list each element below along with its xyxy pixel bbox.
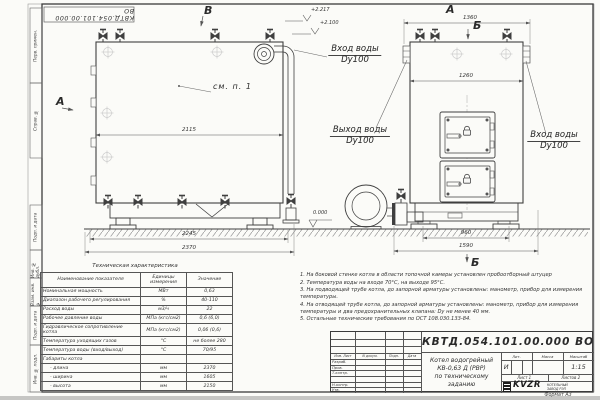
note-line: 3. На подводящей трубе котла, до запорно… <box>300 287 592 300</box>
label-water-inlet-front: Вход воды Dy100 <box>328 45 381 66</box>
note-line: 5. Остальные технические требования по О… <box>300 316 592 323</box>
technical-notes: 1. На боковой стенке котла в области топ… <box>300 272 592 324</box>
col-parameter: Наименование показателя <box>41 273 141 288</box>
tb-lit-value: И <box>501 360 511 374</box>
label-water-outlet: Выход воды Dy100 <box>330 126 390 147</box>
view-label-v: В <box>204 4 212 17</box>
table-header-row: Наименование показателя Единицы измерени… <box>41 273 233 288</box>
table-row: - длинамм2370 <box>41 364 233 373</box>
dim-2370: 2370 <box>182 245 196 251</box>
note-line: 1. На боковой стенке котла в области топ… <box>300 272 592 279</box>
kvzr-logo-subtext: КОТЕЛЬНЫЙ ЗАВОД РЭП <box>547 383 568 391</box>
callout-see-item-1: см. п. 1 <box>213 82 252 91</box>
table-row: Температура уходящих газов°Сне более 280 <box>41 337 233 346</box>
lower-door <box>440 161 495 202</box>
table-row: Рабочее давление водыМПа (кгс/см2)0,6 (6… <box>41 315 233 324</box>
tb-sheets: Листов 2 <box>548 374 595 381</box>
inlet-flange <box>523 46 530 63</box>
dim-2115: 2115 <box>182 127 196 133</box>
table-row: Габариты котла <box>41 355 233 364</box>
margin-label-podp-data-1: Подп. и дата <box>30 205 42 250</box>
col-value: Значение <box>187 273 233 288</box>
top-stamp-docnumber: КВТД.054.101.00.000 ВО <box>44 7 134 22</box>
tb-product-title: Котел водогрейный КВ-0,63 Д (РВР) по тех… <box>421 353 501 393</box>
drawing-sheet: КВТД.054.101.00.000 ВО Перв. примен. Спр… <box>0 0 600 396</box>
dim-960: 960 <box>461 230 472 236</box>
air-valve-icon <box>99 30 107 43</box>
format-label: Формат А3 <box>528 393 588 398</box>
label-water-inlet-side: Вход воды Dy100 <box>527 131 580 152</box>
table-row: - ширинамм1605 <box>41 373 233 382</box>
kvzr-logo-icon <box>503 382 511 392</box>
note-line: 2. Температура воды на входе 70°С, на вы… <box>300 280 592 287</box>
tb-col-podp: Подп. <box>385 353 403 359</box>
table-row: Расход водым3/ч22 <box>41 306 233 315</box>
tb-col-data: Дата <box>403 353 421 359</box>
tb-lit-label: Лит. <box>501 353 532 360</box>
tb-scale-value: 1:15 <box>563 360 594 374</box>
tb-row-utv: Утв. <box>332 387 355 393</box>
table-row: Диапазон рабочего регулирования%40-110 <box>41 297 233 306</box>
upper-door <box>440 112 495 158</box>
kvzr-logo-text: KVZR <box>513 380 541 390</box>
drawing-sheet-photo: КВТД.054.101.00.000 ВО Перв. примен. Спр… <box>0 0 600 400</box>
side-view <box>394 19 538 262</box>
elevation-2100: +2.100 <box>320 20 339 26</box>
dim-2245: 2245 <box>182 231 196 237</box>
table-title: Техническая характеристика <box>70 263 200 269</box>
note-line: 4. На отводящей трубе котла, до запорной… <box>300 302 592 315</box>
tech-characteristics-table: Наименование показателя Единицы измерени… <box>40 272 233 391</box>
table-row: Температура воды (вход/выход)°С70/95 <box>41 346 233 355</box>
margin-label-sprav-n: Справ. № <box>30 83 42 158</box>
dim-1590: 1590 <box>459 243 473 249</box>
ground-line <box>84 229 590 237</box>
elevation-0000: 0.000 <box>313 210 327 216</box>
elevation-2217: +2.217 <box>311 7 330 13</box>
section-label-b-bottom: Б <box>471 256 479 269</box>
title-block: Изм. Лист N докум. Подп. Дата Разраб. Пр… <box>330 331 593 392</box>
view-label-a-left: А <box>56 95 65 108</box>
dim-1360: 1360 <box>463 15 477 21</box>
table-row: Номинальная мощностьМВт0,63 <box>41 288 233 297</box>
table-row: Гидравлическое сопротивление котлаМПа (к… <box>41 324 233 337</box>
tb-doc-number: КВТД.054.101.00.000 ВО <box>421 332 594 353</box>
table-row: - высотамм2150 <box>41 382 233 391</box>
view-label-a-right: А <box>446 3 455 16</box>
col-units: Единицы измерения <box>141 273 187 288</box>
margin-label-perv-primen: Перв. примен. <box>30 8 42 83</box>
dim-1260: 1260 <box>459 73 473 79</box>
tb-scale-label: Масштаб <box>563 353 594 360</box>
front-view <box>62 16 299 256</box>
tb-mass-label: Масса <box>532 353 563 360</box>
tb-col-ndocum: N докум. <box>355 353 385 359</box>
